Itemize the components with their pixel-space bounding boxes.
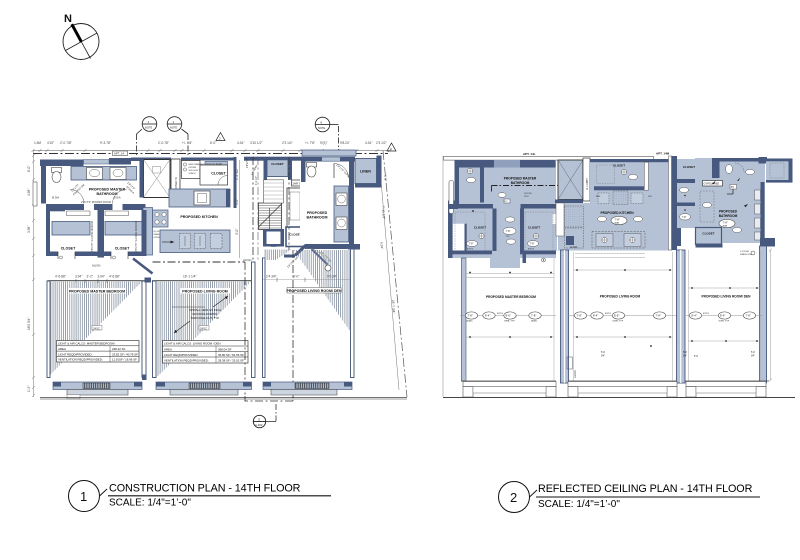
svg-text:1: 1 bbox=[80, 489, 87, 504]
svg-text:4’-6.88": 4’-6.88" bbox=[55, 275, 66, 279]
svg-text:THROUGH-OUT, TYP.: THROUGH-OUT, TYP. bbox=[191, 316, 220, 320]
svg-text:GWB, TYP: GWB, TYP bbox=[719, 321, 730, 323]
svg-text:A-302: A-302 bbox=[255, 423, 263, 427]
svg-text:REF: REF bbox=[596, 196, 601, 198]
svg-text:8’-6": 8’-6" bbox=[720, 314, 725, 318]
svg-text:16’0 3/4": 16’0 3/4" bbox=[27, 318, 31, 330]
svg-text:PROPOSED MASTER BEDROOM: PROPOSED MASTER BEDROOM bbox=[486, 295, 536, 299]
svg-text:8’-6": 8’-6" bbox=[506, 314, 511, 318]
svg-text:3’-0": 3’-0" bbox=[235, 229, 239, 235]
svg-text:8’-0": 8’-0" bbox=[27, 166, 31, 172]
svg-text:EXTG: EXTG bbox=[605, 313, 611, 315]
svg-text:FIREDOOR: FIREDOOR bbox=[740, 254, 752, 256]
svg-text:1-1/2 HR: 1-1/2 HR bbox=[740, 251, 749, 253]
svg-text:3/4": 3/4" bbox=[751, 356, 755, 358]
svg-text:3’-0": 3’-0" bbox=[293, 275, 299, 279]
svg-text:CLOSET: CLOSET bbox=[702, 232, 714, 236]
svg-text:PROPOSED LIVING ROOM/ DEN: PROPOSED LIVING ROOM/ DEN bbox=[702, 295, 752, 299]
svg-text:7’-8": 7’-8" bbox=[746, 314, 751, 318]
svg-text:CLOSET: CLOSET bbox=[289, 233, 301, 237]
svg-text:7’-8": 7’-8" bbox=[468, 314, 473, 318]
svg-text:PROPOSED MASTER BEDROOM: PROPOSED MASTER BEDROOM bbox=[69, 290, 125, 294]
svg-text:11.91SF / 16.96 SF: 11.91SF / 16.96 SF bbox=[112, 358, 137, 362]
svg-text:3.94": 3.94" bbox=[98, 275, 105, 279]
svg-text:PROPOSED KITCHEN: PROPOSED KITCHEN bbox=[600, 211, 634, 215]
svg-text:NOTE: NOTE bbox=[145, 126, 152, 130]
svg-text:2’-0 7/8": 2’-0 7/8" bbox=[60, 141, 72, 145]
svg-text:PROPOSED LIVING ROOM: PROPOSED LIVING ROOM bbox=[600, 295, 641, 299]
svg-text:4.58": 4.58" bbox=[27, 189, 31, 196]
svg-text:9’0.34": 9’0.34" bbox=[327, 275, 337, 279]
svg-text:(E)(E): (E)(E) bbox=[467, 321, 473, 323]
svg-text:4’-0": 4’-0" bbox=[235, 199, 239, 205]
svg-text:2’8"x7’0" SLIDING MIRROR: 2’8"x7’0" SLIDING MIRROR bbox=[91, 221, 94, 252]
svg-text:2’3 1/2": 2’3 1/2" bbox=[376, 141, 387, 145]
svg-text:2’3 1/4": 2’3 1/4" bbox=[282, 141, 293, 145]
svg-text:9’(2)": 9’(2)" bbox=[320, 141, 328, 145]
svg-text:2’-4 1/2": 2’-4 1/2" bbox=[235, 168, 239, 180]
svg-text:368.04 SF: 368.04 SF bbox=[218, 347, 232, 351]
svg-text:NOTE: NOTE bbox=[170, 126, 177, 130]
svg-text:7’-8": 7’-8" bbox=[506, 230, 511, 233]
svg-text:NOTE: NOTE bbox=[318, 126, 325, 130]
svg-text:CLOSET: CLOSET bbox=[613, 164, 625, 168]
svg-text:36.80 SF / 81.56 SF: 36.80 SF / 81.56 SF bbox=[218, 353, 244, 357]
svg-text:7’-8": 7’-8" bbox=[615, 218, 620, 222]
svg-text:1’-9": 1’-9" bbox=[27, 386, 31, 392]
svg-text:4’-6.88": 4’-6.88" bbox=[109, 275, 120, 279]
svg-text:4.34": 4.34" bbox=[365, 141, 372, 145]
svg-text:2’-0.78": 2’-0.78" bbox=[158, 141, 169, 145]
svg-text:Ø DIA: Ø DIA bbox=[52, 196, 59, 200]
svg-text:2’8"x7’0" POCKET DOOR: 2’8"x7’0" POCKET DOOR bbox=[81, 200, 111, 204]
svg-text:2’6"x7’0": 2’6"x7’0" bbox=[246, 159, 249, 168]
svg-text:BATHROOM: BATHROOM bbox=[97, 192, 118, 196]
svg-text:3.38": 3.38" bbox=[27, 226, 31, 233]
svg-text:EXTG: EXTG bbox=[528, 249, 534, 251]
svg-text:VENTILATION REQD/PROVIDED:: VENTILATION REQD/PROVIDED: bbox=[58, 358, 103, 362]
svg-text:3’-8": 3’-8" bbox=[383, 175, 387, 182]
svg-text:BATHROOM: BATHROOM bbox=[307, 216, 328, 220]
svg-text:1122: 1122 bbox=[524, 196, 529, 198]
svg-text:PROPOSED LIVING ROOM: PROPOSED LIVING ROOM bbox=[182, 290, 228, 294]
svg-text:EXTG: EXTG bbox=[497, 313, 503, 315]
svg-text:LIGHT & AIR CALCS: LIVING ROOM: LIGHT & AIR CALCS: LIVING ROOM / DEN bbox=[164, 342, 221, 346]
svg-text:APT. 14L: APT. 14L bbox=[523, 152, 536, 156]
svg-text:APT. 14: APT. 14 bbox=[114, 152, 124, 156]
svg-text:STACK: STACK bbox=[189, 172, 197, 175]
svg-text:N: N bbox=[64, 13, 72, 25]
svg-text:24SC: 24SC bbox=[200, 326, 207, 330]
svg-text:TYP: TYP bbox=[615, 222, 620, 225]
svg-text:2’8"x7’0" SLIDING MIRROR: 2’8"x7’0" SLIDING MIRROR bbox=[135, 221, 138, 252]
svg-text:REFLECTED CEILING PLAN - 14TH: REFLECTED CEILING PLAN - 14TH FLOOR bbox=[538, 483, 753, 495]
svg-text:4.34": 4.34" bbox=[237, 141, 244, 145]
svg-text:6.34": 6.34" bbox=[380, 242, 385, 250]
svg-text:EXTG: EXTG bbox=[703, 313, 709, 315]
svg-text:4’10": 4’10" bbox=[47, 141, 54, 145]
svg-text:APT. 14M: APT. 14M bbox=[656, 152, 670, 156]
svg-text:CLOSET: CLOSET bbox=[115, 247, 130, 251]
svg-text:7’-8": 7’-8" bbox=[656, 314, 661, 318]
svg-text:ALIGN: ALIGN bbox=[92, 264, 100, 268]
svg-text:4’-2 1/2": 4’-2 1/2" bbox=[255, 176, 258, 185]
svg-text:3.94": 3.94" bbox=[75, 275, 82, 279]
svg-text:LIGHT & AIR CALCS: MASTER BEDR: LIGHT & AIR CALCS: MASTER BEDROOM bbox=[58, 342, 115, 346]
svg-text:VENTILATION REQD/PROVIDED:: VENTILATION REQD/PROVIDED: bbox=[164, 358, 209, 362]
svg-text:(E)(E): (E)(E) bbox=[531, 321, 537, 323]
svg-text:23.82 SF / 40.78 SF: 23.82 SF / 40.78 SF bbox=[112, 352, 138, 356]
svg-text:AREA: AREA bbox=[58, 347, 66, 351]
svg-text:JL LOBBY: JL LOBBY bbox=[585, 178, 589, 190]
svg-text:1: 1 bbox=[258, 418, 260, 422]
svg-text:3/4": 3/4" bbox=[601, 356, 605, 358]
svg-text:LINEN: LINEN bbox=[360, 170, 371, 174]
svg-text:GYPSUM BD: GYPSUM BD bbox=[704, 182, 720, 186]
svg-text:CLOSET: CLOSET bbox=[528, 226, 540, 230]
svg-text:PV: PV bbox=[731, 186, 735, 189]
svg-text:7’-8": 7’-8" bbox=[469, 243, 474, 246]
svg-text:DRYER: DRYER bbox=[189, 167, 197, 169]
svg-text:CLOSET: CLOSET bbox=[474, 226, 486, 230]
svg-text:ALIGN: ALIGN bbox=[573, 370, 577, 378]
svg-text:3/4": 3/4" bbox=[683, 356, 687, 358]
svg-text:TYP: TYP bbox=[506, 236, 511, 238]
svg-text:1.5M: 1.5M bbox=[34, 141, 41, 145]
svg-text:8’-4": 8’-4" bbox=[692, 314, 697, 318]
svg-text:LIGHT REQD/PROVIDED:: LIGHT REQD/PROVIDED: bbox=[164, 353, 199, 357]
svg-text:BATHROOM: BATHROOM bbox=[719, 214, 738, 218]
svg-text:7’-8": 7’-8" bbox=[723, 221, 728, 225]
svg-text:PROPOSED: PROPOSED bbox=[307, 211, 328, 215]
svg-text:9’-3.78": 9’-3.78" bbox=[100, 141, 111, 145]
svg-text:LIGHT REQD/PROVIDED:: LIGHT REQD/PROVIDED: bbox=[58, 352, 93, 356]
svg-text:CLOSET: CLOSET bbox=[211, 172, 226, 176]
svg-text:8’-4": 8’-4" bbox=[593, 314, 598, 318]
svg-text:3’10 1/2": 3’10 1/2" bbox=[250, 141, 262, 145]
svg-text:8’-6": 8’-6" bbox=[614, 314, 619, 318]
svg-text:8’-4": 8’-4" bbox=[485, 314, 490, 318]
svg-text:3’-2": 3’-2" bbox=[87, 275, 93, 279]
svg-text:24SC: 24SC bbox=[93, 326, 100, 330]
svg-text:ALIGN: ALIGN bbox=[243, 258, 251, 262]
svg-text:2: 2 bbox=[510, 490, 517, 505]
svg-text:EXTG: EXTG bbox=[467, 249, 473, 251]
svg-text:CLOSET: CLOSET bbox=[683, 165, 695, 169]
svg-text:ALIGN: ALIGN bbox=[570, 246, 577, 249]
svg-text:6’-0": 6’-0" bbox=[210, 141, 216, 145]
svg-text:1122 BL: 1122 BL bbox=[524, 193, 533, 195]
svg-text:238.22 SF: 238.22 SF bbox=[112, 347, 126, 351]
svg-text:PROPOSED KITCHEN: PROPOSED KITCHEN bbox=[180, 215, 218, 219]
svg-text:+/- 7.8": +/- 7.8" bbox=[182, 141, 192, 145]
svg-text:GWB, TYP: GWB, TYP bbox=[504, 321, 515, 323]
svg-text:2’4 3/4": 2’4 3/4" bbox=[266, 275, 277, 279]
svg-text:CLOSET: CLOSET bbox=[61, 247, 76, 251]
svg-text:SCALE: 1/4"=1’-0": SCALE: 1/4"=1’-0" bbox=[538, 499, 620, 510]
svg-text:BATHROOM: BATHROOM bbox=[511, 181, 530, 185]
svg-text:PROPOSED MASTER: PROPOSED MASTER bbox=[504, 177, 537, 181]
svg-text:SCALE: 1/4"=1’-0": SCALE: 1/4"=1’-0" bbox=[109, 498, 191, 509]
svg-text:TYP: TYP bbox=[723, 225, 728, 228]
svg-text:28.38 SF / 33.02 SF: 28.38 SF / 33.02 SF bbox=[218, 358, 244, 362]
svg-text:PROPOSED LIVING ROOM/ DEN: PROPOSED LIVING ROOM/ DEN bbox=[286, 289, 342, 293]
svg-text:7’-8": 7’-8" bbox=[577, 314, 582, 318]
svg-text:+/- 7’8": +/- 7’8" bbox=[305, 141, 315, 145]
svg-text:CLOSET: CLOSET bbox=[271, 162, 284, 166]
svg-text:16’-1 1/4": 16’-1 1/4" bbox=[183, 275, 197, 279]
svg-text:7’-8": 7’-8" bbox=[530, 243, 535, 246]
svg-text:GWB, TYP: GWB, TYP bbox=[613, 321, 624, 323]
svg-text:7’-8": 7’-8" bbox=[531, 314, 536, 318]
svg-text:9’8.24": 9’8.24" bbox=[340, 141, 350, 145]
svg-text:AREA: AREA bbox=[164, 347, 172, 351]
svg-text:PROPOSED: PROPOSED bbox=[719, 210, 738, 214]
svg-text:7’-8": 7’-8" bbox=[682, 216, 687, 219]
svg-text:CONSTRUCTION PLAN - 14TH FLOOR: CONSTRUCTION PLAN - 14TH FLOOR bbox=[109, 483, 301, 495]
svg-text:RISER W: RISER W bbox=[174, 177, 178, 189]
